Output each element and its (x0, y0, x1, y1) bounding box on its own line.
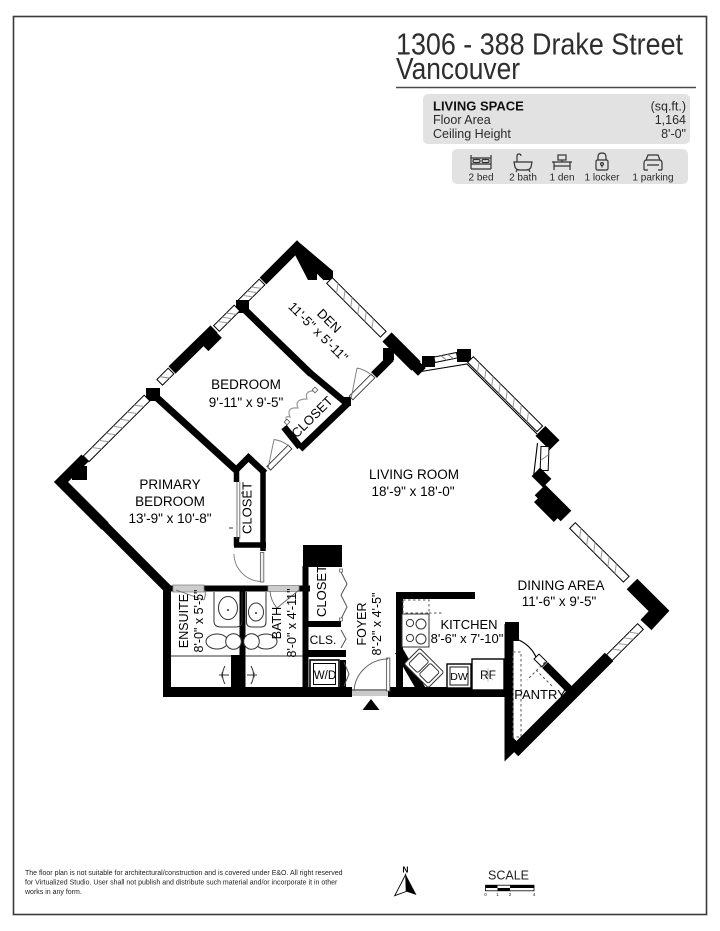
svg-text:DINING AREA: DINING AREA (517, 578, 604, 593)
svg-text:PANTRY: PANTRY (514, 687, 566, 702)
svg-text:LIVING SPACE: LIVING SPACE (433, 99, 524, 114)
svg-text:8'-0" x 4'-11": 8'-0" x 4'-11" (285, 588, 299, 657)
svg-text:1,164: 1,164 (655, 113, 686, 127)
svg-text:SCALE: SCALE (488, 869, 529, 883)
svg-text:DW: DW (450, 671, 468, 683)
svg-text:works in any form.: works in any form. (24, 889, 82, 896)
svg-text:CLS.: CLS. (310, 633, 337, 647)
svg-text:The floor plan is not suitable: The floor plan is not suitable for archi… (25, 870, 343, 877)
svg-text:2 bath: 2 bath (509, 173, 537, 184)
svg-text:PRIMARY: PRIMARY (139, 477, 200, 492)
svg-text:N: N (402, 865, 408, 875)
svg-text:1 parking: 1 parking (632, 173, 673, 184)
svg-text:W/D: W/D (314, 670, 336, 682)
svg-text:1 den: 1 den (549, 173, 574, 184)
svg-text:0: 0 (484, 892, 487, 897)
svg-text:9'-11" x 9'-5": 9'-11" x 9'-5" (209, 395, 284, 410)
svg-text:13'-9" x 10'-8": 13'-9" x 10'-8" (128, 511, 211, 526)
svg-text:(sq.ft.): (sq.ft.) (651, 100, 686, 114)
svg-text:CLOSET: CLOSET (240, 482, 255, 534)
svg-text:11'-6" x 9'-5": 11'-6" x 9'-5" (522, 594, 597, 609)
svg-text:Ceiling Height: Ceiling Height (433, 127, 511, 141)
svg-text:8'-2" x 4'-5": 8'-2" x 4'-5" (370, 593, 384, 656)
svg-text:KITCHEN: KITCHEN (440, 617, 497, 632)
svg-text:BEDROOM: BEDROOM (135, 494, 205, 509)
svg-text:8'-0": 8'-0" (661, 127, 686, 141)
svg-text:BATH: BATH (270, 607, 284, 639)
svg-text:1 locker: 1 locker (584, 173, 620, 184)
svg-text:ENSUITE: ENSUITE (177, 594, 191, 648)
svg-text:8'-0" x 5'-5": 8'-0" x 5'-5" (192, 590, 206, 653)
svg-text:CLOSET: CLOSET (314, 565, 329, 617)
svg-text:BEDROOM: BEDROOM (211, 377, 281, 392)
svg-text:FOYER: FOYER (355, 602, 369, 645)
svg-text:Vancouver: Vancouver (396, 51, 520, 86)
svg-text:for Virtualized Studio. User s: for Virtualized Studio. User shall not p… (25, 880, 338, 887)
svg-text:8'-6" x 7'-10": 8'-6" x 7'-10" (431, 631, 504, 646)
svg-text:LIVING ROOM: LIVING ROOM (369, 467, 459, 482)
svg-text:2: 2 (509, 892, 512, 897)
svg-text:18'-9" x 18'-0": 18'-9" x 18'-0" (371, 484, 454, 499)
svg-text:1: 1 (496, 892, 499, 897)
svg-text:4: 4 (533, 892, 536, 897)
svg-text:2 bed: 2 bed (468, 173, 493, 184)
svg-text:Floor Area: Floor Area (433, 113, 491, 127)
